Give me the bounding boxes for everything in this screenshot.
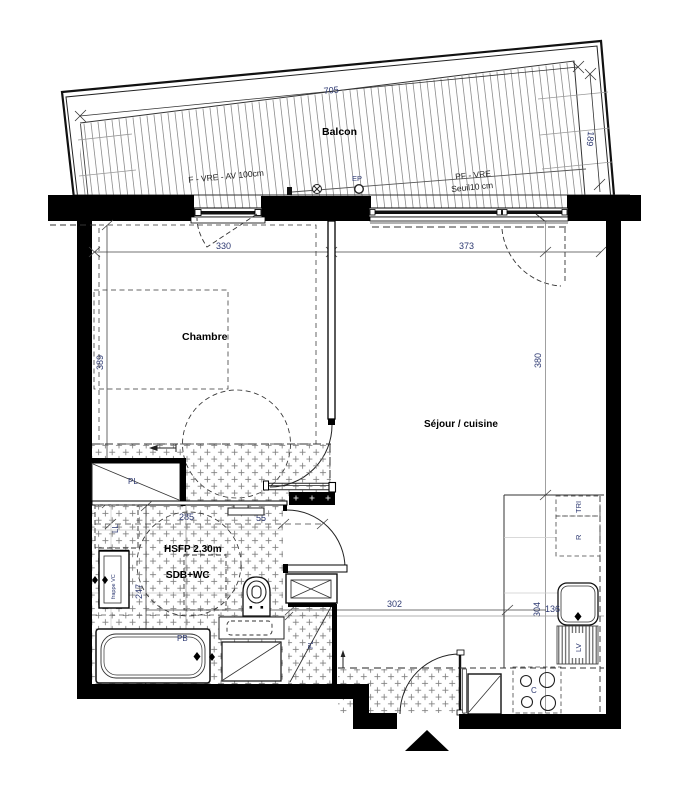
svg-text:Chambre: Chambre xyxy=(182,331,228,343)
svg-text:304: 304 xyxy=(532,602,542,617)
svg-text:380: 380 xyxy=(533,353,543,368)
svg-text:TRI: TRI xyxy=(574,501,583,513)
svg-text:Séjour / cuisine: Séjour / cuisine xyxy=(424,419,498,430)
svg-text:389: 389 xyxy=(95,355,105,370)
svg-text:302: 302 xyxy=(387,599,402,609)
svg-text:PL: PL xyxy=(128,477,138,486)
svg-text:PB: PB xyxy=(177,634,188,643)
svg-text:EP: EP xyxy=(352,174,362,183)
svg-text:R: R xyxy=(574,534,583,540)
svg-text:136: 136 xyxy=(545,604,560,614)
svg-text:SDB+WC: SDB+WC xyxy=(166,570,210,581)
svg-text:LL: LL xyxy=(111,524,120,533)
svg-text:373: 373 xyxy=(459,241,474,251)
svg-text:C: C xyxy=(531,686,537,695)
svg-text:247: 247 xyxy=(134,584,144,599)
svg-text:285: 285 xyxy=(179,512,194,522)
svg-text:PL: PL xyxy=(308,640,315,649)
svg-text:705: 705 xyxy=(323,85,339,96)
svg-text:189: 189 xyxy=(585,131,596,147)
svg-text:HSFP 2.30m: HSFP 2.30m xyxy=(164,544,222,555)
svg-text:330: 330 xyxy=(216,241,231,251)
svg-text:LV: LV xyxy=(574,643,583,652)
svg-text:Balcon: Balcon xyxy=(322,126,357,138)
svg-text:frappe VC: frappe VC xyxy=(111,574,117,599)
